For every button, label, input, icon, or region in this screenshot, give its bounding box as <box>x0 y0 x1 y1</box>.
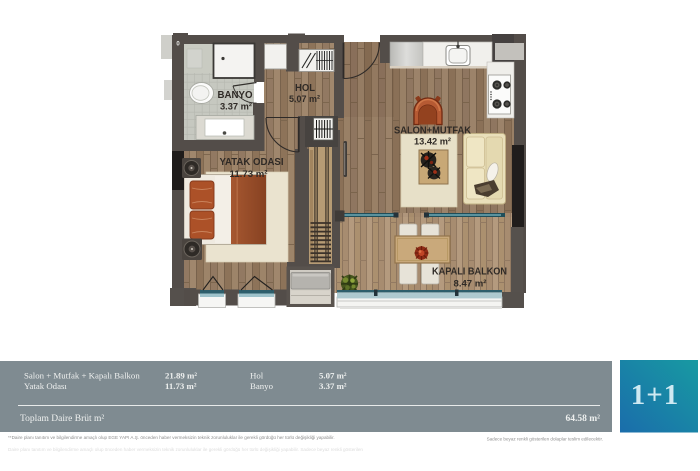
svg-text:13.42 m²: 13.42 m² <box>414 137 451 148</box>
svg-text:5.07 m²: 5.07 m² <box>319 371 347 381</box>
svg-text:Hol: Hol <box>250 371 264 381</box>
svg-text:Toplam Daire Brüt m²: Toplam Daire Brüt m² <box>20 414 104 424</box>
svg-text:5.07 m²: 5.07 m² <box>289 94 320 105</box>
svg-text:11.73 m²: 11.73 m² <box>230 169 268 180</box>
svg-text:11.73 m²: 11.73 m² <box>165 381 197 391</box>
svg-text:HOL: HOL <box>295 82 316 94</box>
svg-text:3.37 m²: 3.37 m² <box>319 381 347 391</box>
svg-text:BANYO: BANYO <box>218 89 253 101</box>
svg-text:SALON+MUTFAK: SALON+MUTFAK <box>394 125 471 137</box>
svg-text:1+1: 1+1 <box>631 379 680 411</box>
svg-text:Daire planı tanıtım ve bilgile: Daire planı tanıtım ve bilgilendirme ama… <box>8 447 363 452</box>
svg-text:3.37 m²: 3.37 m² <box>220 102 252 113</box>
svg-text:KAPALI BALKON: KAPALI BALKON <box>432 266 507 278</box>
svg-text:Yatak Odası: Yatak Odası <box>24 381 67 391</box>
svg-text:64.58 m²: 64.58 m² <box>565 414 600 424</box>
svg-text:Salon + Mutfak + Kapalı Balkon: Salon + Mutfak + Kapalı Balkon <box>24 371 140 381</box>
svg-text:8.47 m²: 8.47 m² <box>454 279 487 290</box>
svg-text:YATAK ODASI: YATAK ODASI <box>220 156 284 168</box>
svg-text:Sadece beyaz renkli gösterilen: Sadece beyaz renkli gösterilen dolaplar … <box>487 437 603 442</box>
svg-text:Banyo: Banyo <box>250 381 274 391</box>
svg-text:21.89 m²: 21.89 m² <box>165 371 197 381</box>
svg-text:**Daire planı tanıtım ve bilgi: **Daire planı tanıtım ve bilgilendirme a… <box>8 435 335 440</box>
